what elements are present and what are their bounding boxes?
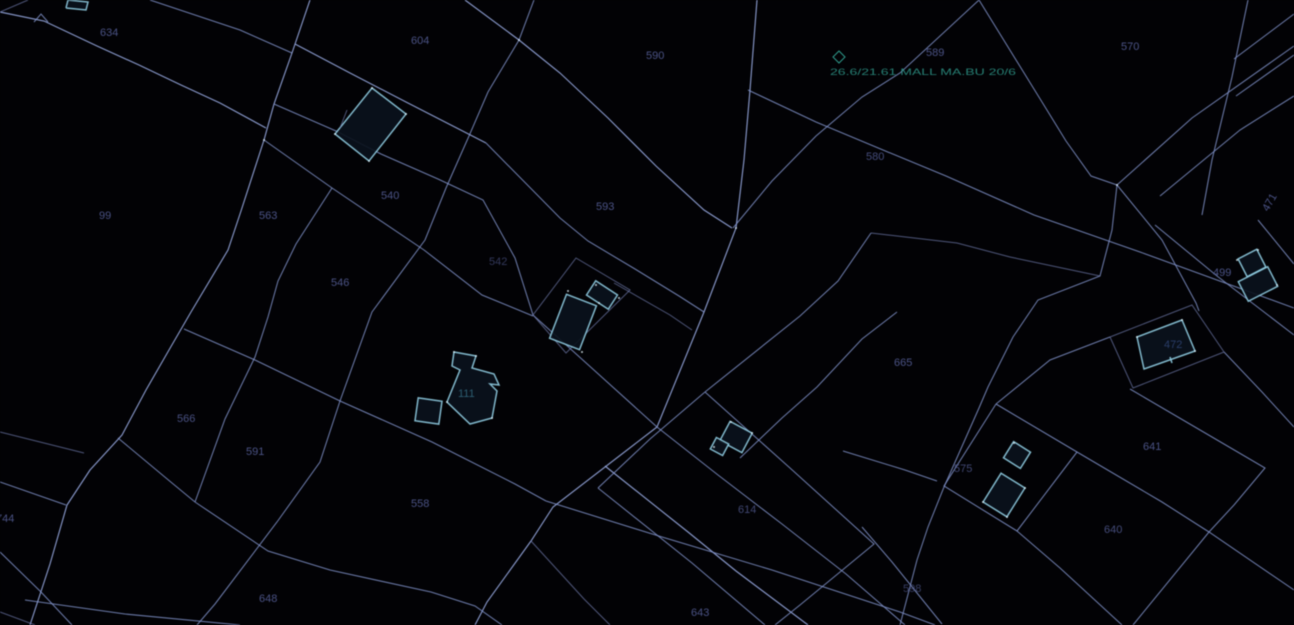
svg-text:542: 542: [489, 256, 507, 268]
svg-text:598: 598: [903, 583, 921, 595]
svg-text:641: 641: [1143, 441, 1161, 453]
svg-text:499: 499: [1213, 267, 1231, 279]
svg-text:472: 472: [1164, 339, 1182, 351]
svg-text:648: 648: [259, 593, 277, 605]
svg-text:540: 540: [381, 190, 399, 202]
svg-text:604: 604: [411, 35, 429, 47]
svg-text:26.6/21.61 MALL MA.BU 20/6: 26.6/21.61 MALL MA.BU 20/6: [830, 67, 1016, 78]
svg-text:575: 575: [954, 463, 972, 475]
svg-text:665: 665: [894, 357, 912, 369]
svg-text:744: 744: [0, 513, 14, 525]
svg-text:614: 614: [738, 504, 756, 516]
svg-text:99: 99: [99, 210, 111, 222]
svg-text:563: 563: [259, 210, 277, 222]
svg-text:580: 580: [866, 151, 884, 163]
svg-text:558: 558: [411, 498, 429, 510]
svg-text:640: 640: [1104, 524, 1122, 536]
svg-text:111: 111: [458, 388, 475, 400]
svg-text:591: 591: [246, 446, 264, 458]
svg-text:634: 634: [100, 27, 118, 39]
svg-text:590: 590: [646, 50, 664, 62]
svg-text:593: 593: [596, 201, 614, 213]
svg-text:589: 589: [926, 47, 944, 59]
svg-text:643: 643: [691, 607, 709, 619]
svg-text:566: 566: [177, 413, 195, 425]
svg-text:546: 546: [331, 277, 349, 289]
svg-text:570: 570: [1121, 41, 1139, 53]
